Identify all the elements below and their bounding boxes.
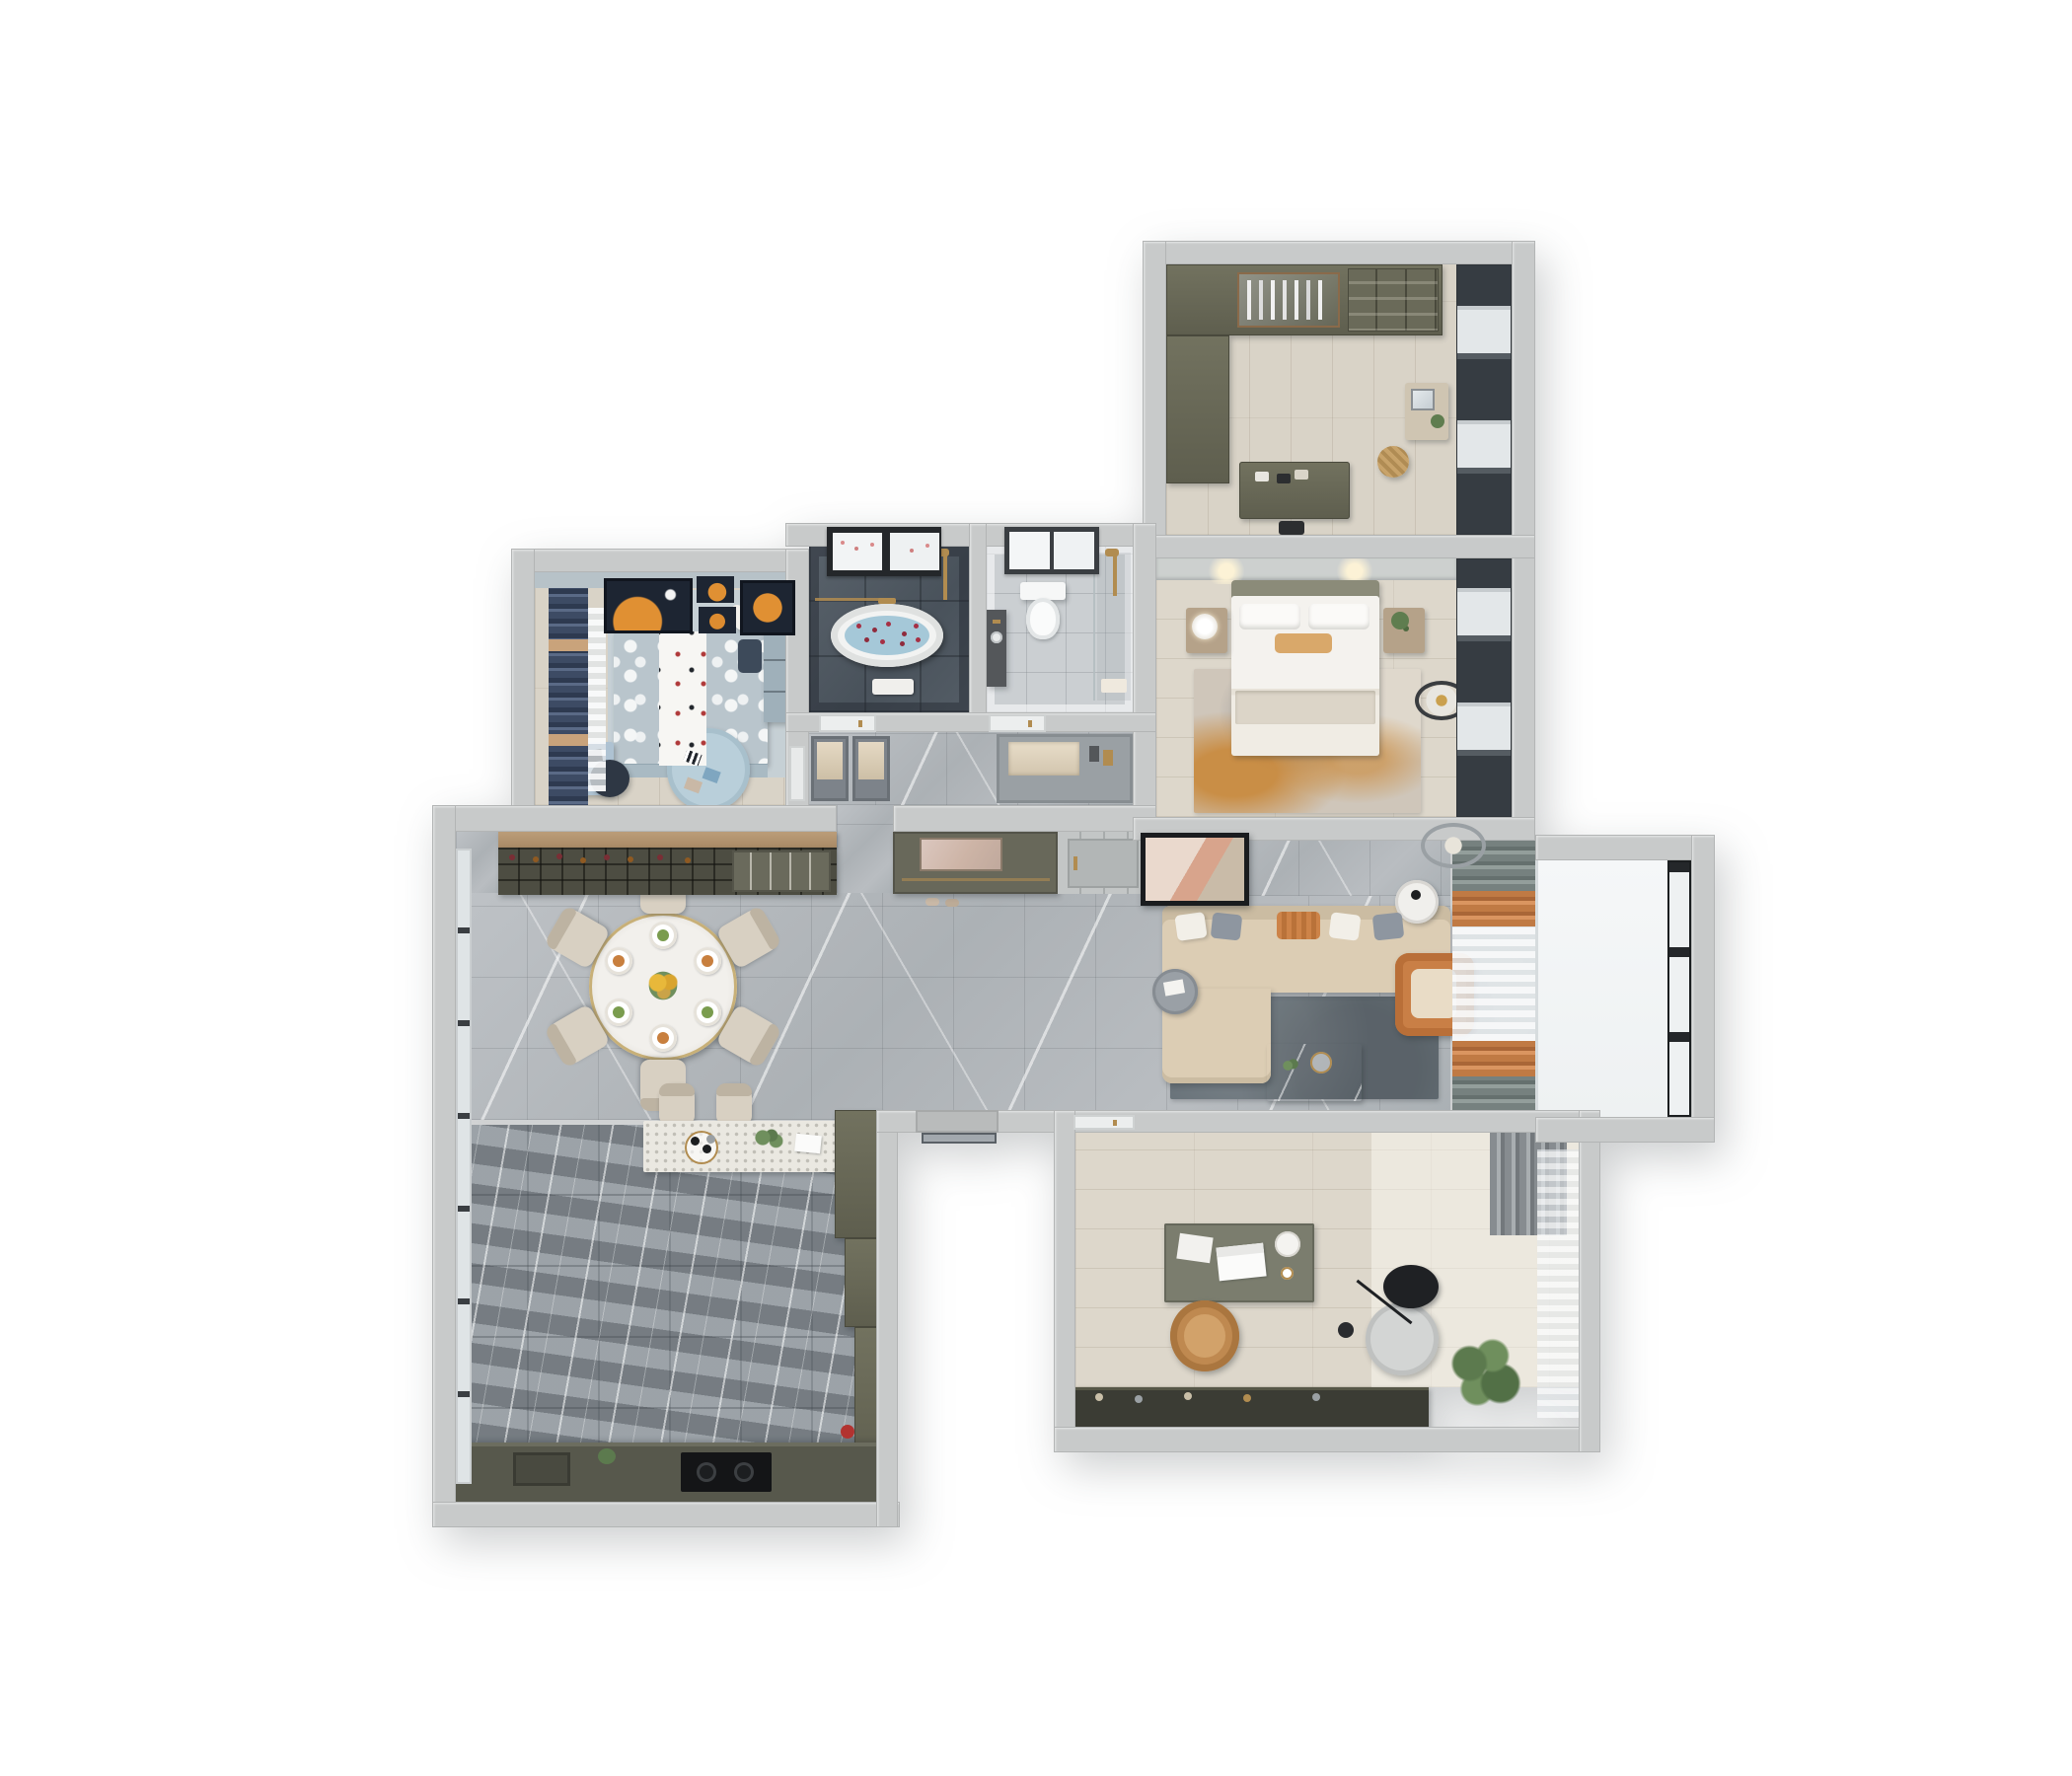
wall-closet-left	[1143, 241, 1166, 547]
kids-art-frame-large	[604, 578, 693, 633]
vanity-gold-faucet	[993, 620, 1000, 624]
window-petal-decals	[841, 541, 845, 545]
wall-closet-top	[1143, 241, 1535, 264]
bathtub-water	[845, 616, 929, 655]
kids-art-frame-square	[740, 580, 795, 635]
place-setting	[694, 947, 721, 975]
hall-niche-decor	[1089, 746, 1099, 762]
service-glass-door	[922, 1133, 997, 1144]
desk-tray	[1275, 1231, 1300, 1257]
pillow-gray-1	[1211, 913, 1243, 941]
gold-shower-bar	[943, 553, 947, 600]
living-curtain-orange-bottom	[1452, 1041, 1535, 1076]
place-setting	[605, 999, 632, 1026]
wall-balcony-top	[1535, 835, 1715, 860]
cooktop	[681, 1452, 772, 1492]
kids-room-door	[789, 746, 805, 801]
closet-vanity-mirror	[1411, 389, 1435, 410]
wall-study-bottom	[1054, 1427, 1600, 1452]
laptop	[1216, 1243, 1266, 1282]
closet-hanging-clothes	[1247, 280, 1251, 320]
floorplan-render	[0, 0, 2072, 1776]
bed-accent-pillow	[1275, 633, 1332, 653]
island-coffee-tray	[685, 1131, 718, 1164]
floor-lamp-base	[1338, 1322, 1354, 1338]
burner-1	[697, 1462, 716, 1482]
hall-display-niche-1	[817, 742, 843, 779]
coffee-table-tray	[1310, 1052, 1332, 1073]
kitchen-floor	[456, 1125, 876, 1480]
bar-stool	[716, 1083, 752, 1125]
nightstand-plant	[1391, 612, 1409, 629]
wall-kids-top	[511, 549, 809, 572]
wall-study-right	[1579, 1110, 1600, 1452]
place-setting	[649, 922, 677, 949]
kids-pillow	[738, 639, 762, 673]
foyer-mirror-niche	[920, 838, 1002, 871]
closet-window-blinds	[1456, 264, 1512, 535]
balcony-glass-line	[1535, 860, 1538, 1117]
study-plant	[1446, 1332, 1523, 1411]
island-board	[794, 1134, 822, 1154]
bed-throw-blanket	[1235, 691, 1375, 724]
closet-glass-doors	[1237, 272, 1340, 328]
left-window-band	[456, 849, 472, 1484]
closet-island-dresser	[1239, 462, 1350, 519]
hall-display-niche-2	[858, 742, 884, 779]
shower-towels	[1101, 679, 1127, 693]
wall-kitchen-bottom	[432, 1502, 900, 1527]
living-artwork	[1141, 833, 1249, 906]
study-door	[1073, 1115, 1135, 1130]
wall-study-left	[1054, 1110, 1075, 1450]
place-setting	[605, 947, 632, 975]
kids-curtain-navy	[549, 588, 588, 811]
closet-vanity-plant	[1431, 414, 1444, 428]
living-ceiling-lamp	[1421, 823, 1486, 868]
island-greenery	[754, 1127, 783, 1148]
bath-primary-door-handle	[858, 720, 862, 727]
flower-centerpiece	[645, 971, 681, 1000]
living-curtain-sheer	[1452, 926, 1535, 1041]
toilet-bowl	[1026, 598, 1060, 639]
bedside-lamp	[1192, 614, 1218, 639]
wall-kitchen-right	[876, 1110, 898, 1527]
bath-guest-door-handle	[1028, 720, 1032, 727]
bar-stool	[659, 1083, 695, 1125]
bedroom-window-blinds	[1456, 558, 1512, 817]
closet-island-decor	[1255, 472, 1269, 481]
kitchen-sink	[513, 1452, 570, 1486]
pillow-white-2	[1329, 912, 1362, 940]
entry-door-handle	[1073, 856, 1077, 870]
wall-balcony-bottom	[1535, 1117, 1715, 1143]
kitchen-tall-cabinet-step1	[835, 1110, 880, 1238]
screenshot-canvas	[0, 0, 2072, 1776]
wine-cabinet-top-beam	[498, 832, 837, 848]
hall-niche-glow	[1008, 742, 1079, 776]
kitchen-tall-cabinet-step2	[845, 1238, 880, 1327]
wall-dining-top-left	[432, 805, 837, 832]
kids-art-frame-small-1	[697, 576, 734, 603]
wall-dining-top-right	[893, 805, 1156, 832]
glassware-shelves	[732, 851, 831, 892]
guest-gold-shower-bar	[1113, 553, 1117, 596]
vanity-basin	[991, 631, 1002, 643]
kids-art-frame-small-2	[699, 607, 736, 633]
place-setting	[694, 999, 721, 1026]
bath-mat	[872, 679, 914, 695]
kids-curtain-tan-stripes	[549, 639, 588, 651]
place-setting	[649, 1024, 677, 1052]
desk-papers	[1176, 1233, 1213, 1263]
wall-kids-left	[511, 549, 535, 829]
foyer-drawer-trim	[902, 878, 1050, 881]
bath-guest-window-panes	[1009, 532, 1050, 569]
counter-plant	[598, 1448, 616, 1464]
foyer-slippers	[925, 898, 939, 906]
bath-primary-door	[819, 714, 876, 732]
bed-pillow-right	[1308, 604, 1369, 629]
study-sheer-curtain	[1537, 1149, 1579, 1418]
cabinet-top-decor	[1095, 1393, 1103, 1401]
side-table-decor	[1411, 890, 1421, 900]
wall-left-outer	[432, 805, 456, 1527]
pillow-gray-2	[1372, 913, 1405, 941]
kids-bed-runner	[659, 631, 706, 766]
pillow-orange	[1277, 912, 1320, 939]
kids-curtain-sheer	[588, 608, 606, 791]
hallway-opening-floor	[837, 805, 893, 896]
wall-balcony-right	[1691, 835, 1715, 1143]
tub-glass-screen-rail	[815, 598, 886, 601]
wine-bottles	[509, 854, 515, 860]
pillow-white-1	[1174, 912, 1207, 941]
entry-door	[1068, 839, 1139, 888]
bedroom-headboard-wall	[1156, 558, 1456, 580]
red-kettle	[841, 1425, 854, 1439]
bed-pillow-left	[1239, 604, 1300, 629]
bath-guest-door	[989, 714, 1046, 732]
living-curtain-orange-top	[1452, 891, 1535, 926]
closet-open-shelves	[1348, 268, 1439, 332]
armchair-cushion	[1411, 969, 1456, 1018]
floor-lamp-shade	[1383, 1265, 1439, 1308]
wall-baths-bedroom-divider	[1133, 523, 1156, 841]
coffee-cup	[1281, 1267, 1294, 1280]
wall-baths-divider	[969, 523, 987, 732]
living-curtain-green-bottom	[1452, 1076, 1535, 1110]
closet-side-wardrobe	[1166, 335, 1229, 483]
closet-rattan-basket	[1377, 446, 1409, 478]
office-chair-cushion	[1184, 1314, 1225, 1358]
study-low-cabinet	[1075, 1387, 1429, 1431]
coffee-table-plant	[1281, 1058, 1298, 1073]
rose-petals	[856, 624, 861, 629]
service-door-opening	[916, 1110, 999, 1133]
guest-gold-shower-head	[1105, 549, 1119, 556]
bath-primary-window-panes	[833, 533, 882, 570]
balcony-window-band	[1667, 860, 1691, 1117]
island-coffee-cups	[691, 1137, 700, 1146]
study-door-handle	[1113, 1120, 1117, 1126]
wall-closet-bedroom-divider	[1143, 535, 1535, 558]
closet-stool	[1279, 521, 1304, 535]
burner-2	[734, 1462, 754, 1482]
